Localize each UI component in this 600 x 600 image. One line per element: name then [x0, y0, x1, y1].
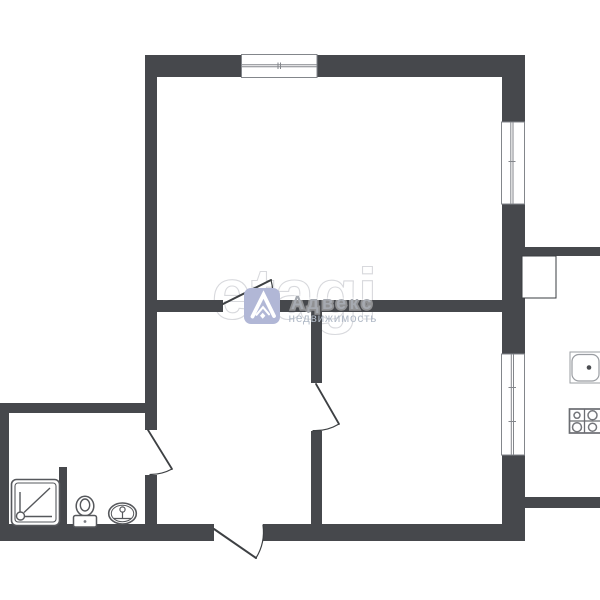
svg-text:недвижимость: недвижимость: [289, 311, 378, 325]
svg-text:Адвекс: Адвекс: [291, 293, 375, 313]
